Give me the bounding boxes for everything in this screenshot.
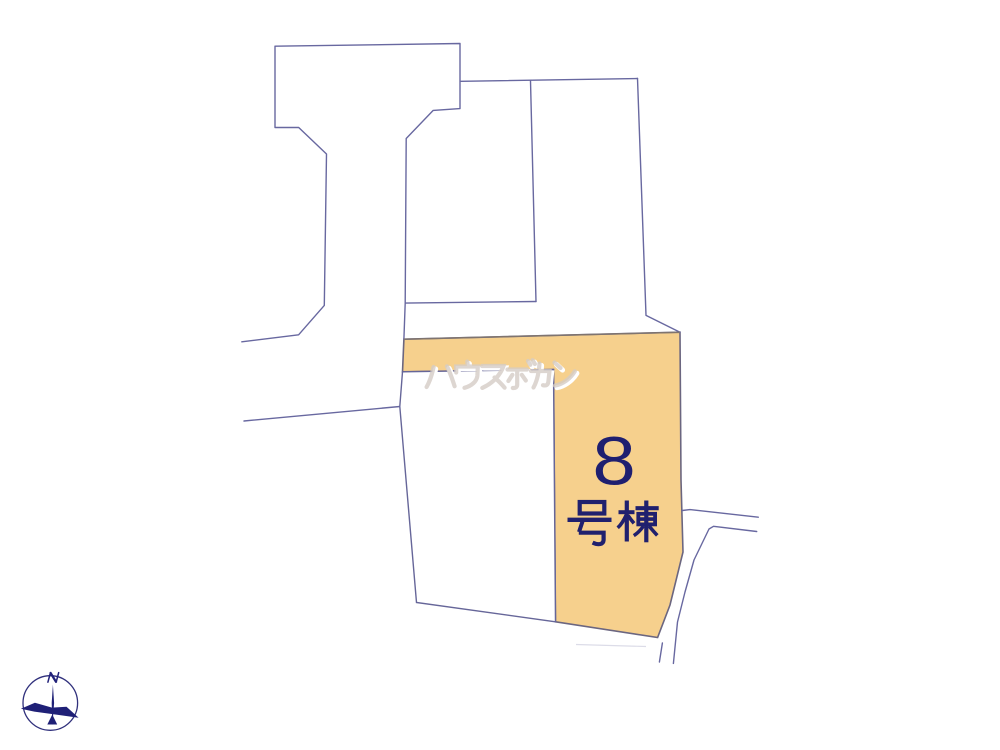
svg-text:8: 8 xyxy=(592,422,635,500)
